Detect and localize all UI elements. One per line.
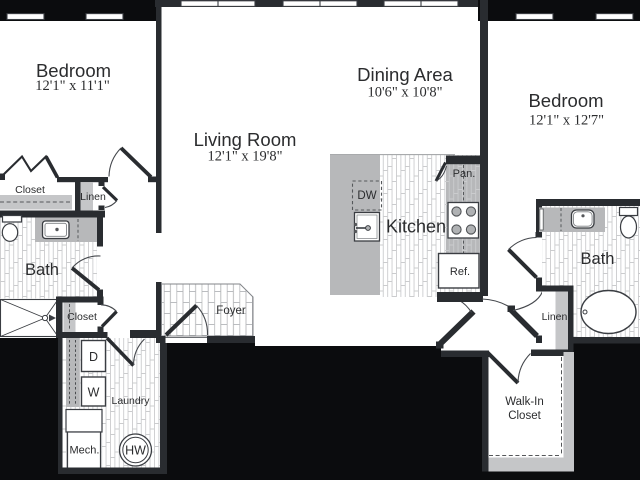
svg-text:Mech.: Mech. bbox=[70, 445, 100, 457]
svg-text:D: D bbox=[89, 350, 98, 364]
svg-text:10'6" x 10'8": 10'6" x 10'8" bbox=[367, 85, 442, 101]
svg-text:Bath: Bath bbox=[25, 261, 59, 279]
svg-text:12'1" x 12'7": 12'1" x 12'7" bbox=[529, 113, 604, 129]
svg-text:Linen: Linen bbox=[542, 311, 568, 323]
svg-text:12'1" x 19'8": 12'1" x 19'8" bbox=[207, 149, 282, 165]
svg-text:Kitchen: Kitchen bbox=[386, 217, 446, 237]
svg-text:Living Room: Living Room bbox=[194, 129, 297, 150]
svg-text:Closet: Closet bbox=[67, 311, 97, 323]
svg-text:DW: DW bbox=[357, 190, 376, 202]
svg-text:Pan.: Pan. bbox=[453, 168, 476, 180]
svg-text:W: W bbox=[88, 386, 100, 400]
svg-text:Walk-In: Walk-In bbox=[505, 396, 544, 408]
svg-text:Closet: Closet bbox=[15, 184, 45, 196]
svg-text:Dining Area: Dining Area bbox=[357, 64, 453, 85]
svg-text:Bedroom: Bedroom bbox=[528, 90, 603, 111]
svg-text:Ref.: Ref. bbox=[450, 266, 470, 278]
svg-text:Linen: Linen bbox=[80, 191, 106, 203]
svg-text:12'1" x 11'1": 12'1" x 11'1" bbox=[35, 78, 110, 94]
svg-text:HW: HW bbox=[125, 444, 146, 458]
svg-text:Laundry: Laundry bbox=[112, 395, 151, 407]
svg-text:Bath: Bath bbox=[581, 250, 615, 268]
svg-text:Closet: Closet bbox=[508, 410, 541, 422]
svg-text:Foyer: Foyer bbox=[216, 305, 246, 317]
